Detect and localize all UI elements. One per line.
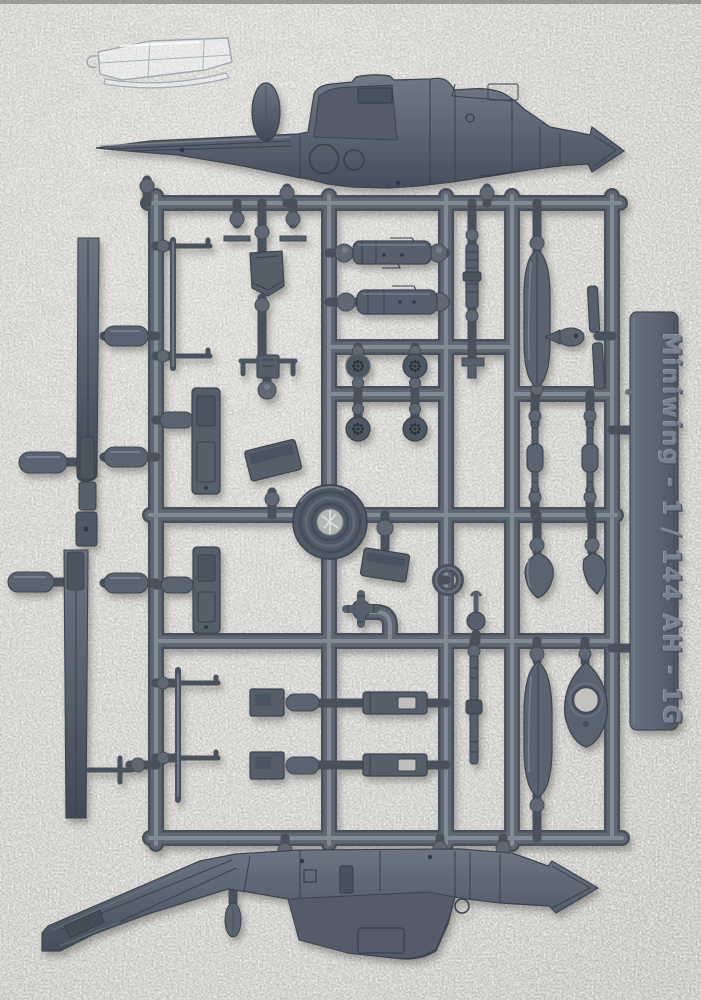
svg-text:Miniwing - 1 / 144 AH - 1G: Miniwing - 1 / 144 AH - 1G — [658, 333, 684, 727]
antenna-blade — [252, 83, 280, 141]
belly-pendant — [225, 903, 241, 937]
photo-model-kit-sprue: Miniwing - 1 / 144 AH - 1G Miniwing - 1 … — [0, 0, 701, 1000]
sprue-photo-canvas: Miniwing - 1 / 144 AH - 1G Miniwing - 1 … — [0, 0, 701, 1000]
photo-top-edge — [0, 0, 701, 4]
label-tab: Miniwing - 1 / 144 AH - 1G Miniwing - 1 … — [625, 312, 686, 730]
label-text: Miniwing - 1 / 144 AH - 1G Miniwing - 1 … — [657, 332, 686, 728]
rotor-head-disc — [293, 485, 367, 559]
minigun-barrel — [463, 244, 481, 308]
